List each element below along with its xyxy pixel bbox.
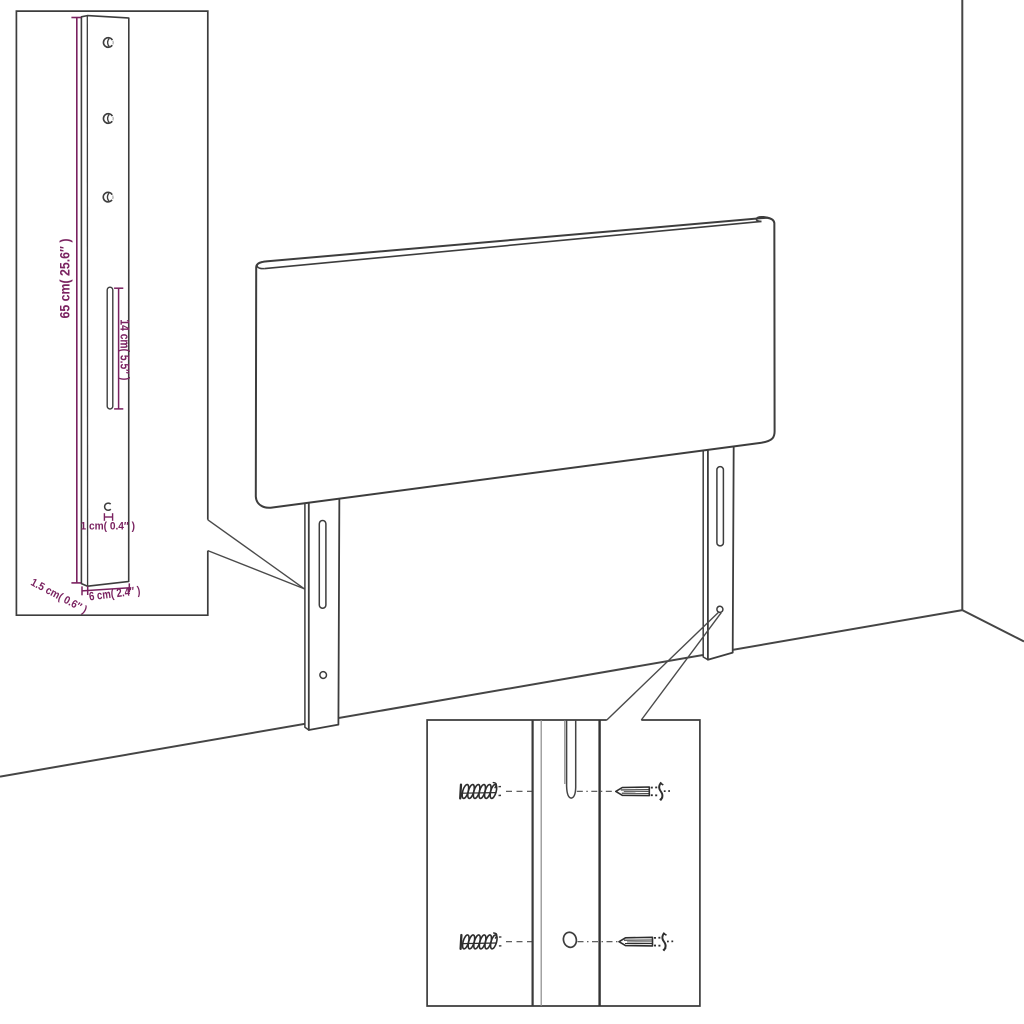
svg-text:1 cm( 0.4″ ): 1 cm( 0.4″ ): [81, 521, 136, 533]
svg-text:65 cm( 25.6″ ): 65 cm( 25.6″ ): [57, 239, 73, 319]
svg-text:14 cm( 5.5″ ): 14 cm( 5.5″ ): [118, 319, 133, 380]
